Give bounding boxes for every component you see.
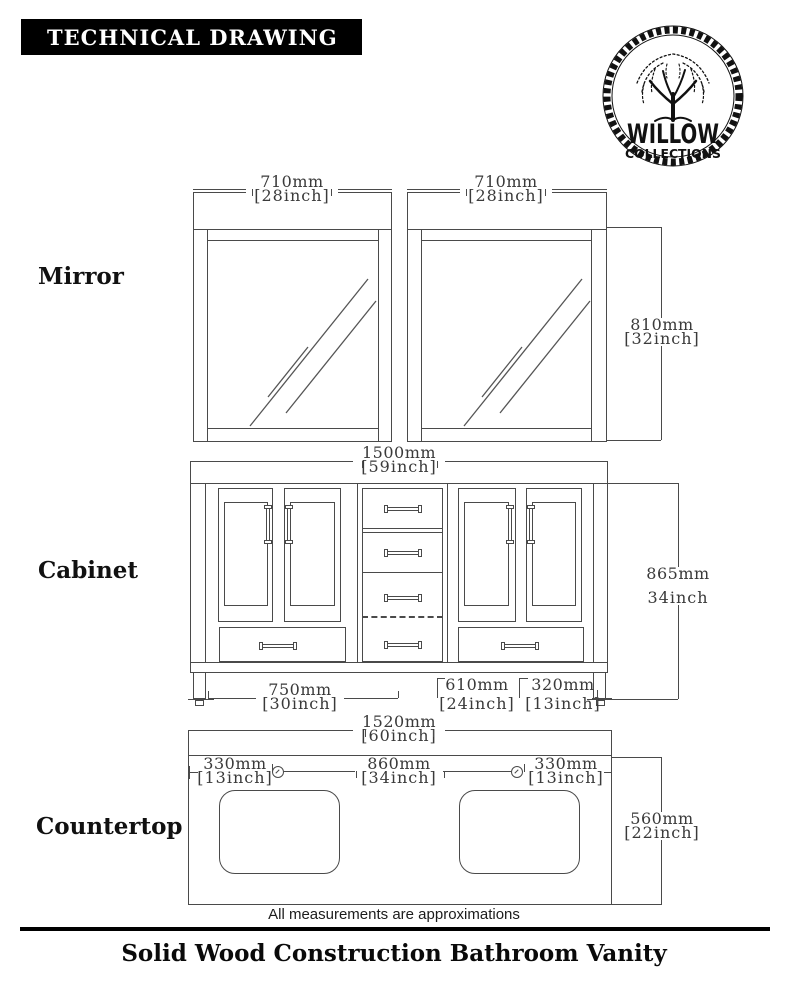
banner-title: TECHNICAL DRAWING [21,19,362,56]
logo-subname-text: COLLECTIONS [625,146,721,161]
drawer-handle [385,551,421,555]
door-handle [266,506,270,543]
divider-rule [20,927,770,931]
dim-cabinet-height: 865mm 34inch [632,567,724,605]
dim-inch: [24inch] [439,697,515,711]
willow-tree-icon [637,54,709,121]
dim-countertop-right-offset: 330mm [13inch] [527,757,605,785]
dim-cabinet-width: 1500mm [59inch] [353,446,445,474]
dim-inch: [32inch] [624,332,700,346]
dim-inch: [13inch] [528,771,604,785]
dim-mirror-right-width: 710mm [28inch] [460,175,552,203]
dim-inch: [22inch] [624,826,700,840]
dim-countertop-center-span: 860mm [34inch] [355,757,443,785]
dim-countertop-depth: 560mm [22inch] [617,812,707,840]
dim-inch: [34inch] [361,771,437,785]
faucet-hole-left [272,766,284,778]
dim-countertop-width: 1520mm [60inch] [353,715,445,743]
drawer-handle [502,644,538,648]
dim-countertop-left-offset: 330mm [13inch] [196,757,274,785]
dim-inch: [13inch] [525,697,601,711]
cabinet-label: Cabinet [38,557,138,584]
faucet-hole-right [511,766,523,778]
mirror-shine-icon [422,241,592,427]
sink-basin-right [459,790,580,874]
drawer-handle [385,643,421,647]
dim-inch: [59inch] [361,460,437,474]
countertop-label: Countertop [36,813,183,840]
technical-drawing-page: TECHNICAL DRAWING WILLOW COLLECTIONS Mir… [0,0,788,990]
dim-mm: 865mm [646,567,709,581]
mirror-label: Mirror [38,263,124,290]
dim-inch: [60inch] [361,729,437,743]
dim-cabinet-center-section: 610mm [24inch] [436,678,518,711]
dim-cabinet-right-section: 320mm [13inch] [522,678,604,711]
cabinet-leg [193,672,206,699]
dim-mm: 610mm [445,678,508,692]
dim-inch: [30inch] [262,697,338,711]
door-handle [529,506,533,543]
technical-drawing-banner: TECHNICAL DRAWING [21,19,362,55]
hidden-drawer-split-line [362,616,443,618]
dim-mirror-left-width: 710mm [28inch] [246,175,338,203]
drawer-handle [260,644,296,648]
sink-basin-left [219,790,340,874]
dim-mm: 320mm [531,678,594,692]
drawing-title: Solid Wood Construction Bathroom Vanity [0,940,788,967]
drawer-handle [385,507,421,511]
mirror-shine-icon [208,241,378,427]
drawer-handle [385,596,421,600]
dim-inch: [28inch] [254,189,330,203]
dim-cabinet-left-section: 750mm [30inch] [256,683,344,711]
measurements-note: All measurements are approximations [0,906,788,923]
door-handle [287,506,291,543]
drawer-bank [362,488,443,662]
dim-inch: 34inch [647,591,708,605]
dim-inch: [28inch] [468,189,544,203]
dim-mirror-height: 810mm [32inch] [616,318,708,346]
dim-inch: [13inch] [197,771,273,785]
willow-collections-logo: WILLOW COLLECTIONS [597,20,749,172]
door-handle [508,506,512,543]
